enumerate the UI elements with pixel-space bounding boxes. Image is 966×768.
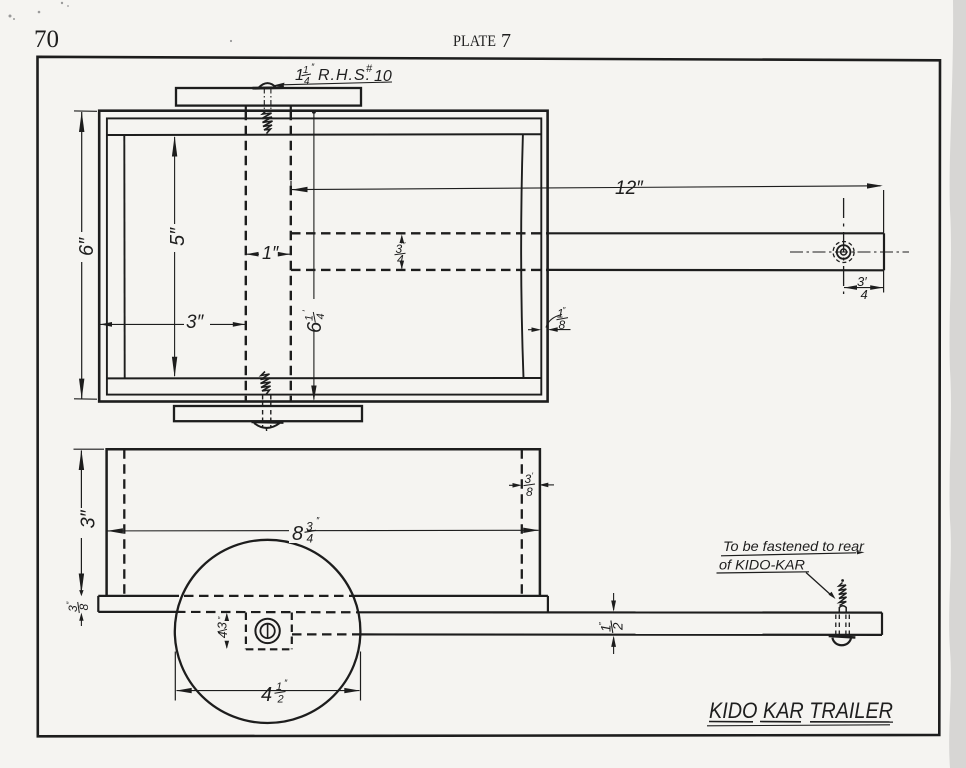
svg-text:7: 7: [501, 30, 511, 52]
svg-text:4: 4: [861, 287, 868, 302]
svg-text:8: 8: [292, 523, 303, 545]
svg-text:To be fastened to rear: To be fastened to rear: [723, 538, 865, 554]
svg-text:8: 8: [559, 318, 566, 332]
svg-text:4: 4: [397, 253, 404, 267]
svg-text:3″: 3″: [78, 509, 100, 528]
svg-text:12″: 12″: [615, 178, 644, 199]
svg-text:70: 70: [34, 26, 59, 53]
svg-text:3: 3: [525, 472, 532, 486]
svg-text:4: 4: [315, 313, 327, 319]
svg-text:R.H.S.: R.H.S.: [318, 67, 371, 84]
svg-text:4: 4: [261, 684, 272, 706]
svg-text:1: 1: [276, 681, 282, 693]
svg-text:of KIDO-KAR: of KIDO-KAR: [719, 557, 805, 573]
svg-text:1″: 1″: [262, 243, 279, 263]
svg-text:4: 4: [216, 631, 230, 638]
svg-text:5″: 5″: [167, 227, 189, 246]
svg-text:KIDO KAR TRAILER: KIDO KAR TRAILER: [709, 698, 893, 723]
svg-text:PLATE: PLATE: [453, 33, 496, 50]
svg-text:4: 4: [304, 76, 310, 87]
svg-text:2: 2: [277, 694, 284, 706]
svg-text:6: 6: [304, 321, 326, 333]
svg-text:8: 8: [77, 604, 91, 611]
svg-text:8: 8: [526, 485, 533, 499]
svg-text:3: 3: [216, 622, 230, 629]
svg-text:4: 4: [307, 532, 314, 546]
svg-text:2: 2: [611, 622, 626, 631]
svg-text:6″: 6″: [76, 237, 98, 256]
svg-text:#: #: [366, 63, 373, 75]
svg-text:3″: 3″: [186, 312, 205, 333]
